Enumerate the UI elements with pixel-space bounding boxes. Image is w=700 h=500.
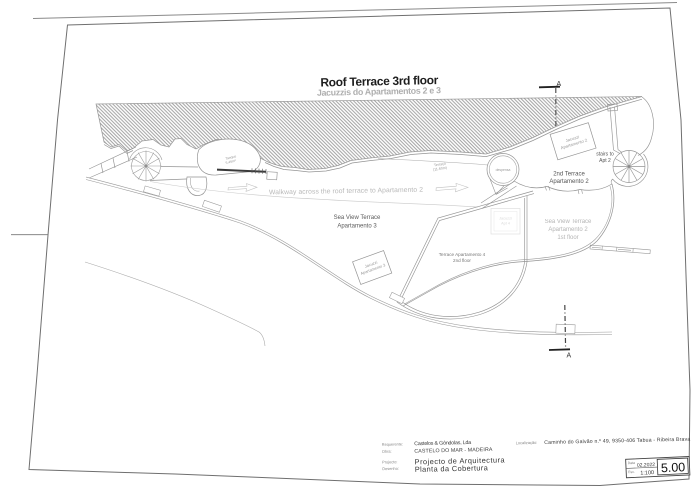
svg-text:Localização:: Localização: xyxy=(516,440,538,445)
svg-text:5.00: 5.00 xyxy=(661,460,686,475)
svg-text:Apartamento 2: Apartamento 2 xyxy=(548,227,588,233)
svg-text:02.2022: 02.2022 xyxy=(637,462,656,469)
svg-text:1st floor: 1st floor xyxy=(557,235,578,241)
svg-text:2nd floor: 2nd floor xyxy=(453,258,471,263)
svg-text:Planta da Cobertura: Planta da Cobertura xyxy=(415,463,489,474)
svg-text:Desenho:: Desenho: xyxy=(382,466,399,471)
svg-text:1:100: 1:100 xyxy=(640,470,654,477)
svg-text:Sea View Terrace: Sea View Terrace xyxy=(545,219,592,225)
svg-text:Jacuzzi: Jacuzzi xyxy=(499,217,512,221)
svg-text:Requerente:: Requerente: xyxy=(382,441,404,446)
svg-text:Sea View Terrace: Sea View Terrace xyxy=(334,215,381,221)
svg-text:stairs to: stairs to xyxy=(596,152,614,158)
svg-text:Castelos & Gôndolas, Lda: Castelos & Gôndolas, Lda xyxy=(414,440,471,447)
svg-text:Apt 4: Apt 4 xyxy=(501,222,510,226)
svg-text:A: A xyxy=(567,353,572,360)
svg-text:2nd Terrace: 2nd Terrace xyxy=(553,172,585,178)
svg-text:Apartamento 2: Apartamento 2 xyxy=(549,179,589,185)
svg-text:Apartamento 3: Apartamento 3 xyxy=(337,224,377,230)
svg-text:A: A xyxy=(557,81,562,88)
svg-text:Esc.: Esc. xyxy=(628,470,635,474)
svg-text:Obra:: Obra: xyxy=(382,449,392,454)
svg-text:Data: Data xyxy=(628,461,635,465)
svg-text:Projecto:: Projecto: xyxy=(382,459,397,464)
svg-text:despensa: despensa xyxy=(496,168,511,172)
svg-text:Terrace Apartamento 4: Terrace Apartamento 4 xyxy=(439,252,486,257)
svg-text:Apt 2: Apt 2 xyxy=(599,158,611,164)
